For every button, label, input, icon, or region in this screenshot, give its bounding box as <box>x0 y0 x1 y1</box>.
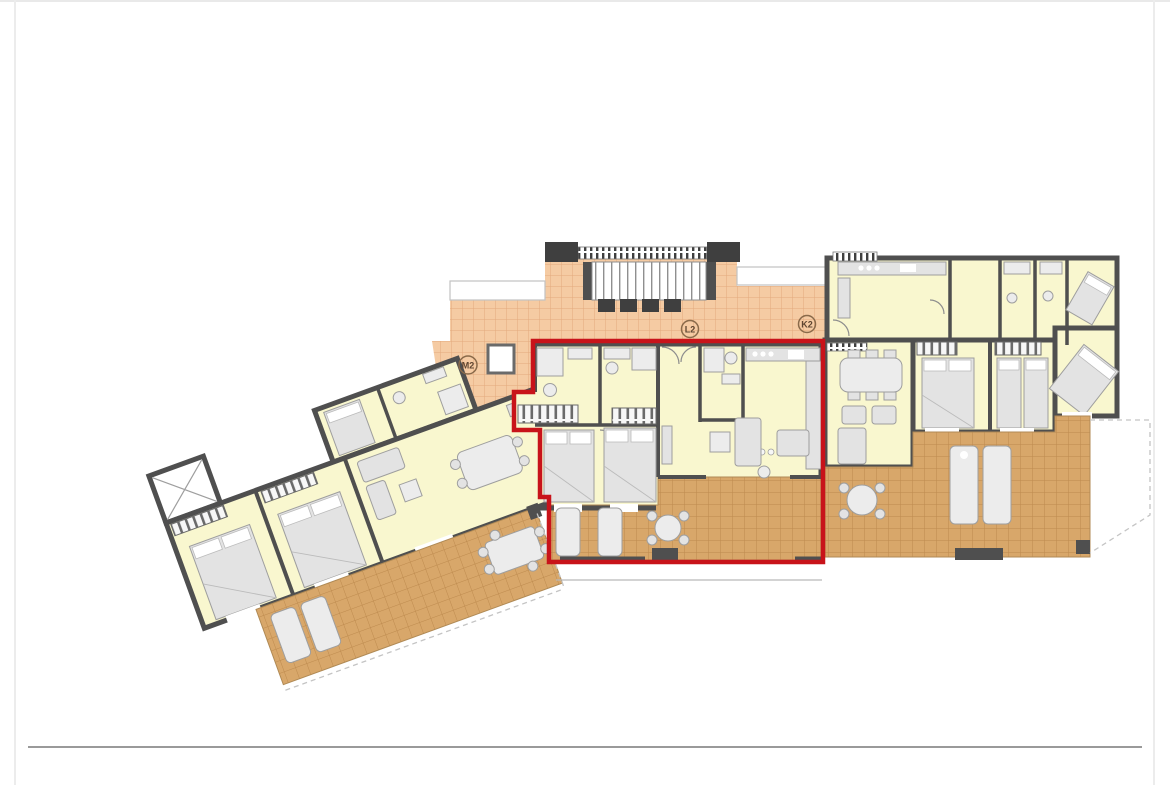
balustrade-hatch <box>833 252 877 261</box>
wardrobe <box>518 405 578 423</box>
wardrobe <box>612 408 656 424</box>
unit-label-m2-text: M2 <box>462 361 475 371</box>
balustrade-hatch <box>578 247 707 259</box>
page-background: M2 L2 K2 <box>0 0 1170 785</box>
wardrobe <box>995 342 1041 355</box>
canopy-right <box>737 267 830 285</box>
storage-room <box>488 345 514 373</box>
unit-right-wing <box>825 252 1150 560</box>
wardrobe <box>917 342 957 355</box>
unit-middle-highlighted <box>514 341 823 580</box>
canopy-left <box>450 281 545 300</box>
bed-double <box>922 358 974 428</box>
balustrade-hatch <box>827 343 867 351</box>
terrace-projection-dashed <box>1090 420 1150 553</box>
unit-label-k2-text: K2 <box>801 320 813 330</box>
bed-double <box>604 428 656 502</box>
unit-label-l2-text: L2 <box>685 325 696 335</box>
floor-plan-image: M2 L2 K2 <box>0 0 1170 785</box>
staircase <box>592 262 706 300</box>
bed-double <box>544 430 594 502</box>
wall-cap-right <box>707 242 740 262</box>
wall-cap-left <box>545 242 578 262</box>
